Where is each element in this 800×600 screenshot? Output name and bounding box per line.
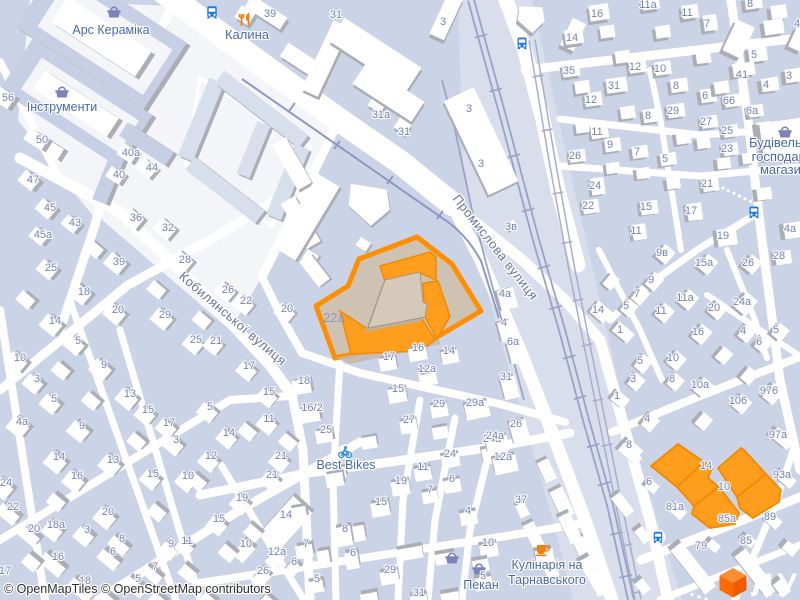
svg-text:4: 4 <box>740 325 746 337</box>
svg-text:8: 8 <box>645 110 651 122</box>
svg-text:8: 8 <box>626 439 632 451</box>
svg-text:25: 25 <box>721 125 733 137</box>
svg-text:12а: 12а <box>268 546 287 558</box>
svg-text:106: 106 <box>729 395 747 407</box>
svg-text:17: 17 <box>0 565 11 577</box>
svg-text:8: 8 <box>673 80 679 92</box>
svg-text:14: 14 <box>280 509 292 521</box>
svg-text:6: 6 <box>291 556 297 568</box>
svg-text:3: 3 <box>34 373 40 385</box>
svg-text:39: 39 <box>264 8 276 20</box>
svg-text:25: 25 <box>190 334 202 346</box>
svg-text:5: 5 <box>773 324 779 336</box>
svg-text:18: 18 <box>78 286 90 298</box>
svg-text:28: 28 <box>773 250 785 262</box>
svg-text:15: 15 <box>213 513 225 525</box>
svg-text:26: 26 <box>569 150 581 162</box>
svg-text:79: 79 <box>695 540 707 552</box>
svg-text:29а: 29а <box>466 397 485 409</box>
svg-text:Інструменти: Інструменти <box>27 100 97 114</box>
svg-text:6: 6 <box>646 476 652 488</box>
svg-text:11а: 11а <box>676 292 694 304</box>
svg-text:25: 25 <box>320 424 332 436</box>
svg-text:15: 15 <box>375 496 387 508</box>
svg-text:19: 19 <box>717 230 729 242</box>
svg-text:31: 31 <box>500 371 512 383</box>
svg-text:7: 7 <box>634 288 640 300</box>
svg-text:37: 37 <box>515 494 527 506</box>
svg-text:8: 8 <box>119 533 125 545</box>
svg-text:4: 4 <box>794 18 800 30</box>
svg-text:3в: 3в <box>505 221 517 233</box>
svg-text:31: 31 <box>398 126 410 138</box>
svg-text:976: 976 <box>760 385 778 397</box>
svg-text:9: 9 <box>607 139 613 151</box>
svg-text:11: 11 <box>181 535 192 547</box>
svg-text:ЛУН: ЛУН <box>751 567 800 600</box>
svg-text:24а: 24а <box>486 430 505 442</box>
svg-text:12: 12 <box>629 61 641 73</box>
svg-text:4а: 4а <box>784 223 797 235</box>
svg-text:14: 14 <box>53 451 65 463</box>
svg-text:32: 32 <box>162 222 174 234</box>
svg-text:4: 4 <box>465 505 471 517</box>
svg-text:15: 15 <box>640 201 652 213</box>
svg-text:3: 3 <box>466 103 472 115</box>
svg-text:24: 24 <box>589 180 601 192</box>
svg-text:11: 11 <box>630 225 641 237</box>
svg-text:26: 26 <box>742 257 754 269</box>
svg-text:81а: 81а <box>666 501 685 513</box>
svg-text:20: 20 <box>28 523 40 535</box>
svg-text:27: 27 <box>700 116 712 128</box>
svg-text:10: 10 <box>654 63 666 75</box>
svg-text:7: 7 <box>152 561 158 573</box>
svg-text:43: 43 <box>69 217 81 229</box>
svg-text:12а: 12а <box>418 363 437 375</box>
svg-text:10: 10 <box>482 537 494 549</box>
svg-text:Будівельн: Будівельн <box>749 135 800 150</box>
svg-text:26: 26 <box>257 565 269 577</box>
svg-text:8: 8 <box>669 373 675 385</box>
svg-text:6: 6 <box>702 90 708 102</box>
svg-text:3: 3 <box>478 158 484 170</box>
svg-text:6: 6 <box>449 473 455 485</box>
svg-text:29: 29 <box>159 309 171 321</box>
svg-text:11а: 11а <box>639 0 657 11</box>
svg-text:3: 3 <box>786 70 792 82</box>
svg-text:6а: 6а <box>746 105 759 117</box>
svg-text:26: 26 <box>510 418 522 430</box>
svg-text:9: 9 <box>79 420 85 432</box>
svg-text:28: 28 <box>179 254 191 266</box>
svg-text:21: 21 <box>210 335 222 347</box>
svg-text:5: 5 <box>51 393 57 405</box>
svg-text:18а: 18а <box>47 519 66 531</box>
svg-text:22: 22 <box>582 200 594 212</box>
svg-text:24: 24 <box>0 477 12 489</box>
svg-text:5: 5 <box>75 335 81 347</box>
svg-text:21: 21 <box>701 178 713 190</box>
svg-text:10а: 10а <box>691 379 710 391</box>
svg-text:19: 19 <box>236 492 248 504</box>
svg-text:1: 1 <box>614 390 620 402</box>
svg-text:14: 14 <box>223 427 235 439</box>
svg-text:21: 21 <box>266 469 278 481</box>
svg-text:17: 17 <box>163 417 175 429</box>
svg-text:11: 11 <box>681 7 692 19</box>
svg-text:10: 10 <box>240 538 252 550</box>
svg-text:3: 3 <box>440 16 446 28</box>
svg-text:7: 7 <box>427 484 433 496</box>
svg-text:16: 16 <box>692 326 704 338</box>
svg-text:44: 44 <box>146 162 158 174</box>
svg-text:16: 16 <box>71 470 83 482</box>
svg-text:85: 85 <box>740 535 752 547</box>
svg-text:66: 66 <box>723 95 735 107</box>
svg-text:10: 10 <box>667 352 679 364</box>
svg-text:14: 14 <box>49 315 61 327</box>
svg-text:4: 4 <box>763 79 769 91</box>
svg-text:9в: 9в <box>656 247 668 259</box>
svg-text:17: 17 <box>243 360 255 372</box>
svg-text:3: 3 <box>84 524 90 536</box>
svg-text:10: 10 <box>14 352 26 364</box>
svg-text:29: 29 <box>667 105 679 117</box>
svg-text:14: 14 <box>566 32 578 44</box>
svg-text:3: 3 <box>630 373 636 385</box>
svg-text:6: 6 <box>756 336 762 348</box>
svg-text:15: 15 <box>392 383 404 395</box>
svg-text:31: 31 <box>413 587 425 599</box>
svg-text:11: 11 <box>417 461 428 473</box>
svg-text:24а: 24а <box>733 296 752 308</box>
svg-text:21: 21 <box>275 450 287 462</box>
svg-text:22а: 22а <box>323 310 345 325</box>
svg-text:13: 13 <box>124 388 136 400</box>
svg-text:40а: 40а <box>122 147 141 159</box>
svg-text:29: 29 <box>384 564 396 576</box>
svg-text:50: 50 <box>36 134 48 146</box>
svg-text:56: 56 <box>2 92 14 104</box>
svg-text:20: 20 <box>281 303 293 315</box>
svg-text:10: 10 <box>182 470 194 482</box>
svg-text:5: 5 <box>751 49 757 61</box>
svg-text:магазин: магазин <box>760 162 800 177</box>
svg-text:97а: 97а <box>769 429 788 441</box>
svg-text:10: 10 <box>718 481 730 493</box>
svg-text:4а: 4а <box>499 288 512 300</box>
svg-text:14: 14 <box>592 304 604 316</box>
svg-text:5: 5 <box>314 573 320 585</box>
svg-text:16: 16 <box>591 8 603 20</box>
svg-text:12: 12 <box>205 450 217 462</box>
svg-text:85а: 85а <box>718 513 737 525</box>
svg-text:31: 31 <box>330 9 342 21</box>
svg-text:6а: 6а <box>507 336 520 348</box>
svg-text:5: 5 <box>207 401 213 413</box>
svg-text:15: 15 <box>147 468 159 480</box>
svg-text:89: 89 <box>764 511 776 523</box>
svg-text:41: 41 <box>736 69 748 81</box>
svg-text:22: 22 <box>240 295 252 307</box>
svg-text:3: 3 <box>173 434 179 446</box>
svg-text:Арс Кераміка: Арс Кераміка <box>72 23 149 37</box>
svg-text:7: 7 <box>704 18 710 30</box>
svg-text:14: 14 <box>443 345 455 357</box>
svg-text:© OpenMapTiles © OpenStreetMap: © OpenMapTiles © OpenStreetMap contribut… <box>4 582 271 596</box>
svg-text:16/2: 16/2 <box>301 402 322 414</box>
svg-text:7: 7 <box>303 538 309 550</box>
svg-text:15: 15 <box>263 386 275 398</box>
svg-text:20: 20 <box>102 506 114 518</box>
svg-text:9: 9 <box>648 274 654 286</box>
svg-text:13: 13 <box>107 454 119 466</box>
svg-text:4: 4 <box>501 317 507 329</box>
svg-text:15а: 15а <box>695 257 714 269</box>
svg-text:Калина: Калина <box>225 27 270 42</box>
svg-text:5: 5 <box>480 570 486 582</box>
svg-text:1: 1 <box>617 324 623 336</box>
svg-text:Тарнавського: Тарнавського <box>508 573 586 587</box>
svg-text:35: 35 <box>563 65 575 77</box>
svg-text:11: 11 <box>263 413 274 425</box>
svg-text:22: 22 <box>7 501 19 513</box>
svg-text:29: 29 <box>433 398 445 410</box>
svg-text:31а: 31а <box>372 109 391 121</box>
svg-text:31: 31 <box>608 80 620 92</box>
svg-text:15: 15 <box>142 404 154 416</box>
svg-text:20: 20 <box>112 304 124 316</box>
svg-text:5: 5 <box>637 355 643 367</box>
svg-text:12а: 12а <box>494 451 513 463</box>
svg-text:12: 12 <box>585 94 597 106</box>
svg-text:47: 47 <box>27 174 39 186</box>
svg-text:39: 39 <box>113 256 125 268</box>
svg-text:4: 4 <box>644 413 650 425</box>
svg-text:24: 24 <box>444 448 456 460</box>
svg-text:Кулінарія на: Кулінарія на <box>511 558 582 572</box>
svg-text:8: 8 <box>747 0 753 10</box>
svg-text:8: 8 <box>342 523 348 535</box>
svg-text:17: 17 <box>685 205 697 217</box>
svg-text:20: 20 <box>708 302 720 314</box>
svg-text:11: 11 <box>655 305 666 317</box>
svg-text:45: 45 <box>44 202 56 214</box>
svg-text:9: 9 <box>168 538 174 550</box>
svg-text:Best Bikes: Best Bikes <box>316 458 375 472</box>
svg-text:6: 6 <box>110 546 116 558</box>
svg-text:7: 7 <box>634 146 640 158</box>
svg-text:9: 9 <box>101 359 107 371</box>
svg-text:40: 40 <box>113 169 125 181</box>
svg-text:19: 19 <box>395 475 407 487</box>
svg-text:17: 17 <box>383 351 395 363</box>
svg-text:5: 5 <box>662 153 668 165</box>
svg-text:26: 26 <box>222 284 234 296</box>
svg-text:6: 6 <box>350 547 356 559</box>
svg-text:93а: 93а <box>773 469 792 481</box>
svg-text:16: 16 <box>52 551 64 563</box>
svg-text:14: 14 <box>700 460 712 472</box>
svg-text:5: 5 <box>623 300 629 312</box>
svg-text:27: 27 <box>403 414 415 426</box>
svg-text:45а: 45а <box>34 229 53 241</box>
svg-text:11: 11 <box>591 126 602 138</box>
svg-text:25: 25 <box>45 262 57 274</box>
svg-text:23: 23 <box>721 143 733 155</box>
svg-text:16: 16 <box>412 342 424 354</box>
svg-text:36: 36 <box>130 212 142 224</box>
svg-text:18: 18 <box>298 375 310 387</box>
svg-text:4а: 4а <box>16 416 29 428</box>
